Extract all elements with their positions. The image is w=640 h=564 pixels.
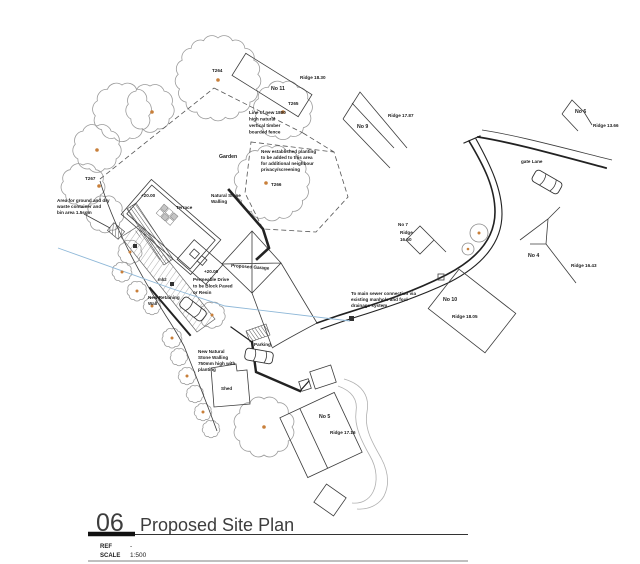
building-label-no9: No 9 (357, 124, 368, 130)
ridge-label-no7-line2: 16.50 (400, 237, 412, 242)
tree-tag-t266: T266 (271, 182, 282, 187)
building-label-no11: No 11 (271, 86, 285, 92)
note-waste-line3: bin area 1.5sqm (57, 210, 92, 215)
building-label-no5: No 5 (319, 414, 330, 420)
building-no5 (280, 392, 362, 477)
building-no4 (520, 207, 576, 283)
building-label-no6: No 6 (575, 109, 586, 115)
note-fence-line4: boarded fence (249, 130, 281, 135)
ridge-label-no11: Ridge 18.30 (300, 75, 326, 80)
note-sewer-line1: To main sewer connection via (351, 291, 416, 296)
note-drive-line3: or Resin (193, 290, 212, 295)
manhole-mh2-square (170, 282, 174, 286)
ridge-label-no9: Ridge 17.87 (388, 113, 414, 118)
tree-tag-t265: T265 (288, 101, 299, 106)
note-planting-line3: for additional neighbour (261, 161, 314, 166)
ref-value: - (130, 543, 132, 550)
note-planting-line2: to be added to this area (261, 155, 313, 160)
tree-canopy (126, 85, 174, 133)
bank-hedge-outline (338, 379, 387, 509)
level-drive: +20.00 (204, 269, 219, 274)
drive-marker (133, 244, 137, 248)
note-stone-walling-line1: Natural Stone (211, 193, 241, 198)
label-terrace: Terrace (176, 205, 193, 210)
level-house: +20.00 (141, 193, 156, 198)
fence-line-west (100, 88, 214, 179)
label-garden: Garden (219, 154, 237, 160)
ridge-label-no4: Ridge 16.43 (571, 263, 597, 268)
note-new-stone-wall-line3: 750mm high with (198, 361, 235, 366)
scale-label: SCALE (100, 553, 120, 559)
site-plan-page: T264 T265 T266 T267 No 11 Ridge 18.30 No… (0, 0, 640, 564)
label-gate-lane: gate Lane (521, 159, 543, 164)
building-no10 (428, 269, 516, 353)
note-retaining-line2: Wall (148, 301, 157, 306)
note-sewer-line3: drainage system (351, 303, 387, 308)
ref-label: REF (100, 544, 112, 550)
street-edge-far (482, 130, 612, 160)
note-planting-line1: New established planting (261, 149, 316, 154)
terrace-paving (156, 204, 178, 225)
outbuilding-small (310, 365, 336, 389)
tree-canopy-group (61, 36, 312, 457)
stone-wall (229, 190, 269, 259)
note-drive-line1: Permeable Drive (193, 277, 229, 282)
building-no11 (232, 53, 312, 116)
tree-canopy (93, 83, 152, 141)
building-no9 (343, 92, 407, 168)
title-block: 06 Proposed Site Plan REF - SCALE 1:500 (88, 509, 468, 561)
scale-value: 1:500 (130, 552, 147, 559)
building-no6 (562, 100, 592, 131)
access-lane (272, 130, 612, 348)
note-new-stone-wall-line2: Stone Walling (198, 355, 228, 360)
ridge-label-no5: Ridge 17.16 (330, 430, 356, 435)
note-waste-line1: Area for ground and dry (57, 198, 110, 203)
building-label-no10: No 10 (443, 297, 457, 303)
drawing-title: Proposed Site Plan (140, 515, 294, 535)
note-waste-line2: waste container and (56, 204, 101, 209)
label-proposed-garage: Proposed Garage (231, 263, 270, 271)
building-label-no7: No 7 (398, 222, 408, 227)
manhole-square (349, 316, 354, 321)
note-planting-line4: privacy/screening (261, 167, 300, 172)
car-on-lane (531, 169, 563, 195)
note-fence-line3: vertical timber (249, 123, 281, 128)
ridge-label-no7-line1: Ridge (400, 230, 413, 235)
note-drive-line2: to be Block Paved (193, 284, 233, 289)
tree-canopy (186, 386, 204, 403)
parking-retaining-wall (252, 342, 300, 391)
ridge-label-no10: Ridge 18.05 (452, 314, 478, 319)
note-new-stone-wall-line4: planting (198, 367, 216, 372)
site-plan-drawing: T264 T265 T266 T267 No 11 Ridge 18.30 No… (0, 0, 640, 564)
note-sewer-line2: existing manhole and foul (351, 297, 408, 302)
building-label-no4: No 4 (528, 253, 539, 259)
ridge-label-no6: Ridge 13.66 (593, 123, 619, 128)
tree-tag-t267: T267 (85, 176, 96, 181)
note-new-stone-wall-line1: New Natural (198, 349, 225, 354)
note-retaining-line1: New Retaining (148, 295, 180, 300)
label-parking: Parking (254, 342, 271, 347)
tree-canopy (170, 349, 188, 366)
manhole-mh2-label: mh2 (158, 277, 167, 282)
note-fence-line1: Line of new 1800 (249, 110, 286, 115)
steps-hatch (246, 324, 270, 342)
tree-canopy (202, 421, 220, 438)
car-at-parking (244, 348, 274, 365)
lane-to-parking-line (272, 323, 317, 348)
note-stone-walling-line2: Walling (211, 199, 227, 204)
note-fence-line2: high natural (249, 117, 275, 122)
small-structure (314, 484, 346, 516)
label-shed: Shed (221, 386, 232, 391)
tree-tag-t264: T264 (212, 68, 223, 73)
